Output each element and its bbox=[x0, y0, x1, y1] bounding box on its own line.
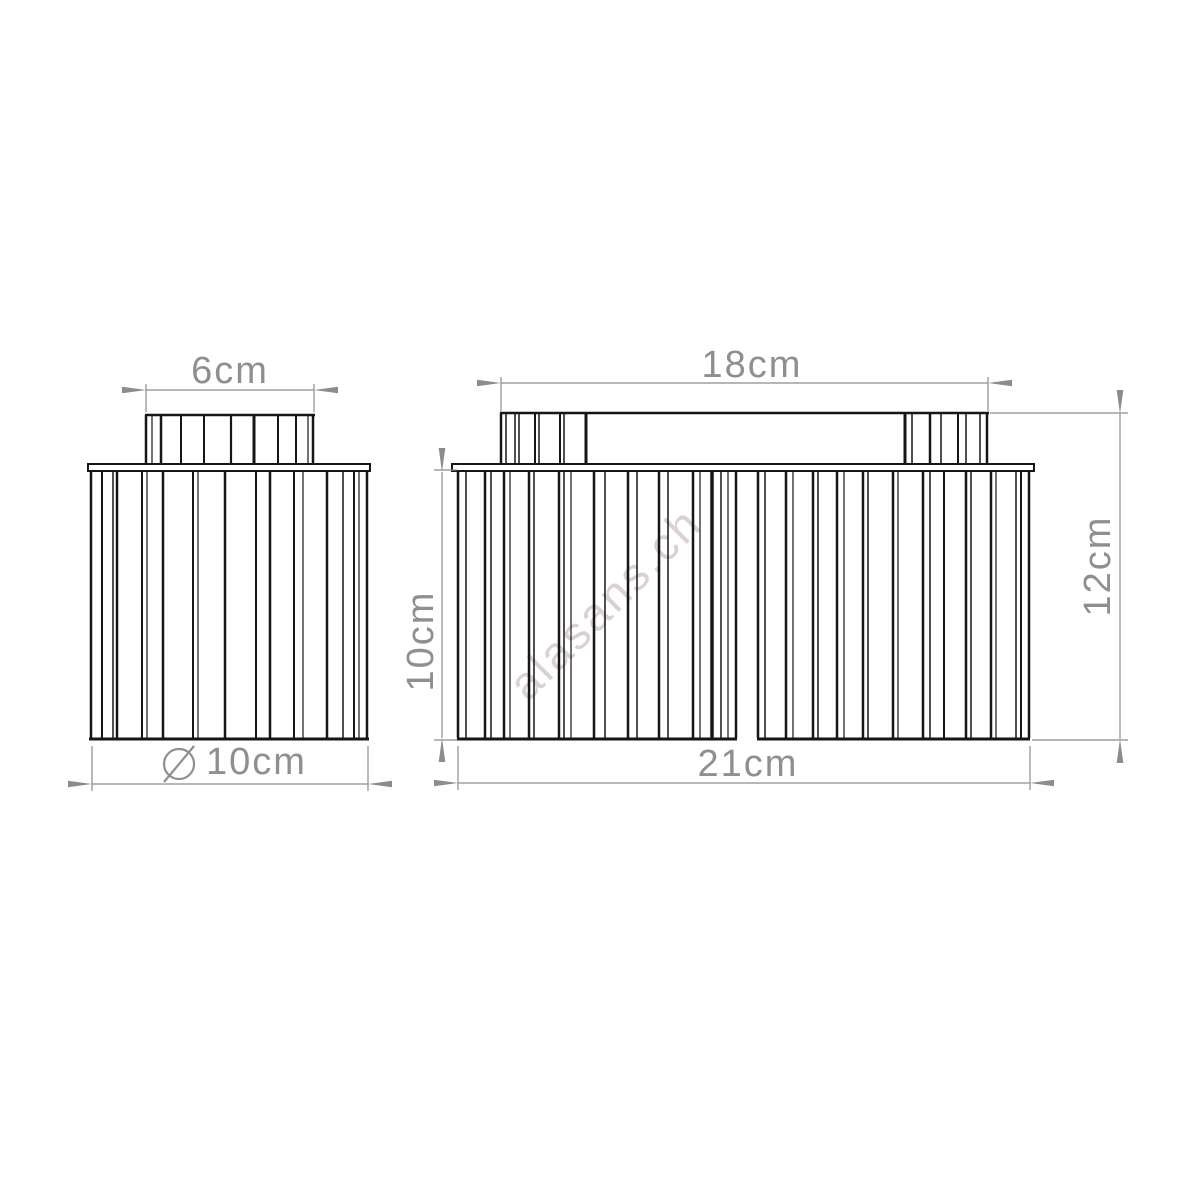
product-dimension-diagram: alasans.ch 6cm 18cm 10cm 21cm 10cm 12cm bbox=[0, 0, 1200, 1200]
dimension-label-shade-height: 10cm bbox=[402, 591, 440, 692]
dimension-label-left-top-width: 6cm bbox=[191, 352, 269, 390]
lamp-technical-drawing bbox=[0, 0, 1200, 1200]
diameter-value: 10cm bbox=[206, 743, 307, 781]
dimension-label-left-diameter: 10cm bbox=[159, 738, 307, 786]
diameter-symbol-icon bbox=[159, 738, 199, 786]
dimension-label-total-height: 12cm bbox=[1079, 516, 1117, 617]
dimension-label-right-bottom-width: 21cm bbox=[698, 745, 799, 783]
dimension-label-right-top-width: 18cm bbox=[702, 346, 803, 384]
